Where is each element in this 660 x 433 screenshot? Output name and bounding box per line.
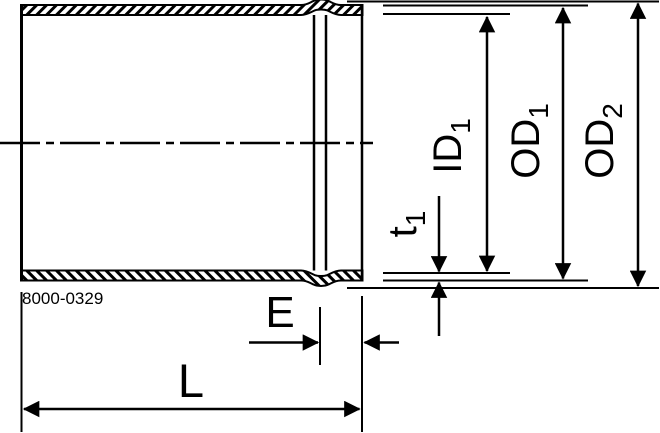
pipe-body	[0, 0, 373, 286]
part-number: 8000-0329	[22, 289, 103, 308]
pipe-expanded-end-drawing: ID1 OD1 OD2 t1 E L 8000-0329	[0, 0, 660, 433]
pipe-top-wall-section	[21, 0, 363, 15]
pipe-bottom-wall-section	[21, 271, 363, 286]
label-t1: t1	[381, 211, 431, 238]
label-e: E	[265, 288, 294, 337]
label-l: L	[178, 354, 204, 407]
label-od2: OD2	[578, 103, 628, 179]
dimension-lines	[24, 4, 638, 410]
label-id1: ID1	[426, 118, 476, 174]
technical-drawing-canvas: ID1 OD1 OD2 t1 E L 8000-0329	[0, 0, 660, 433]
label-od1: OD1	[504, 103, 554, 179]
